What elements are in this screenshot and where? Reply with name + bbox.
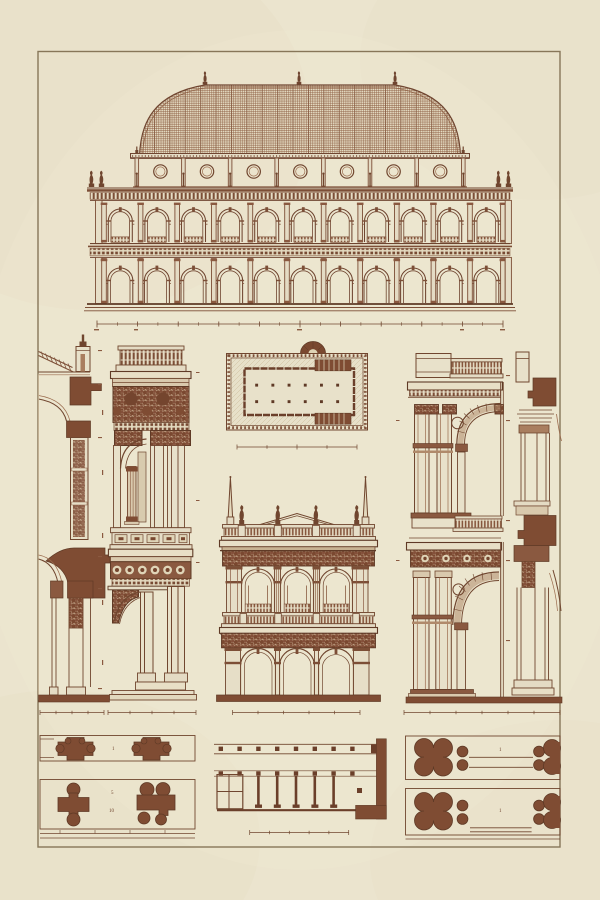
svg-text:10: 10 bbox=[109, 809, 115, 814]
